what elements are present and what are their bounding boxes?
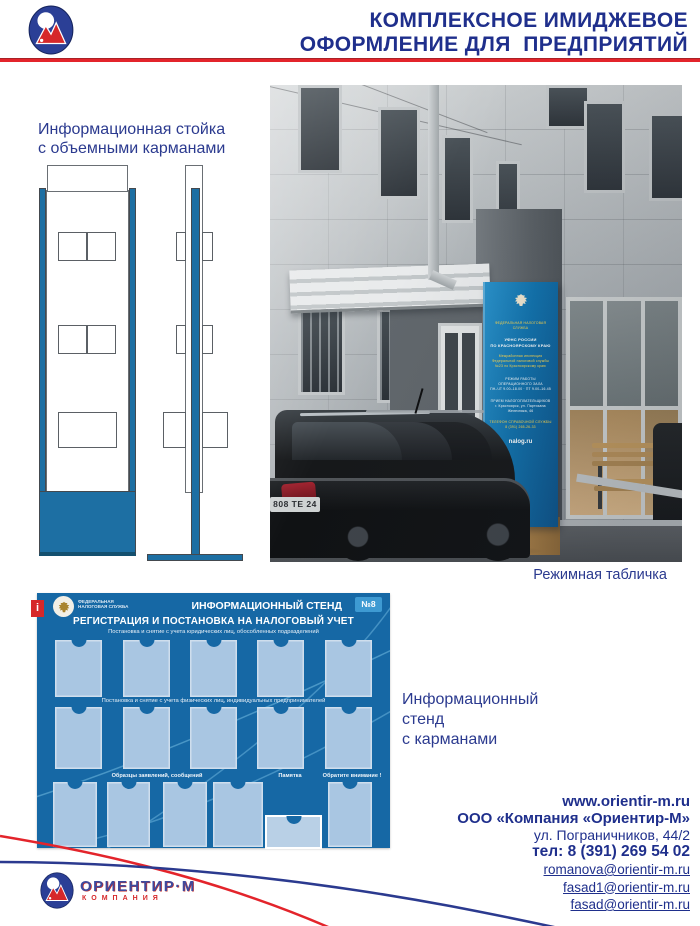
pylon-text: ФЕДЕРАЛЬНАЯ НАЛОГОВАЯ СЛУЖБА <box>489 321 552 331</box>
pylon-text: ПН–ЧТ 9.00–18.00 · ПТ 9.00–16.45 <box>489 387 552 392</box>
pocket <box>213 782 263 847</box>
fns-emblem-circle <box>53 596 74 617</box>
email-link[interactable]: fasad1@orientir-m.ru <box>457 879 690 897</box>
pocket-landscape <box>267 817 320 847</box>
company-name: ООО «Компания «Ориентир-М» <box>457 810 690 827</box>
board-title: РЕГИСТРАЦИЯ И ПОСТАНОВКА НА НАЛОГОВЫЙ УЧ… <box>37 616 390 627</box>
email-link[interactable]: fasad@orientir-m.ru <box>457 896 690 914</box>
pocket <box>325 640 372 697</box>
header-divider <box>0 58 700 62</box>
pocket <box>328 782 372 847</box>
drawing-pocket <box>87 232 116 261</box>
pocket <box>53 782 97 847</box>
pocket <box>55 640 102 697</box>
drawing-pocket <box>176 232 186 261</box>
pocket <box>257 707 304 769</box>
board-attention-label: Обратите внимание ! <box>323 773 382 779</box>
stand-drawing-caption: Информационная стойка с объемными карман… <box>38 120 225 158</box>
board-caption-line2: стенд <box>402 710 538 730</box>
company-address: ул. Пограничников, 44/2 <box>457 827 690 843</box>
window-pane <box>607 301 640 406</box>
window <box>649 113 682 201</box>
drawing-pocket <box>202 325 213 354</box>
window <box>298 85 342 173</box>
stand-caption-line1: Информационная стойка <box>38 120 225 139</box>
drawing-pocket <box>202 232 213 261</box>
board-type-label: ИНФОРМАЦИОННЫЙ СТЕНД <box>191 600 342 612</box>
board-section1-label: Постановка и снятие с учета юридических … <box>37 629 390 635</box>
pylon-text: г. Красноярск, ул. Партизана Железняка, … <box>489 404 552 414</box>
stand-caption-line2: с объемными карманами <box>38 139 225 158</box>
drawing-pocket <box>58 232 87 261</box>
brochure-page: КОМПЛЕКСНОЕ ИМИДЖЕВОЕОФОРМЛЕНИЕ ДЛЯ ПРЕД… <box>0 0 700 926</box>
stand-side-bar <box>129 188 136 493</box>
stand-header-panel <box>47 165 128 192</box>
board-section2-label: Постановка и снятие с учета физических л… <box>37 698 390 704</box>
fns-eagle-icon <box>513 292 529 308</box>
pylon-text: ПО КРАСНОЯРСКОМУ КРАЮ <box>489 343 552 349</box>
stand-pole <box>191 188 200 556</box>
pocket <box>257 640 304 697</box>
info-icon: i <box>31 600 44 617</box>
window-pane <box>645 301 678 406</box>
company-logo-mountain-icon <box>28 5 74 55</box>
company-phone: тел: 8 (391) 269 54 02 <box>457 843 690 861</box>
board-caption-line3: с карманами <box>402 730 538 750</box>
photo-caption: Режимная табличка <box>533 567 667 583</box>
window <box>584 101 625 193</box>
drawing-pocket-wide <box>202 412 228 448</box>
board-memo-label: Памятка <box>278 773 301 779</box>
board-samples-label: Образцы заявлений, сообщений <box>112 773 203 779</box>
downspout-pipe <box>428 85 439 280</box>
window-pane <box>570 301 603 406</box>
drawing-pocket-wide <box>58 412 117 448</box>
entrance-canopy <box>289 264 490 314</box>
building-photo: ФЕДЕРАЛЬНАЯ НАЛОГОВАЯ СЛУЖБА УФНС РОССИИ… <box>270 85 682 562</box>
drawing-pocket <box>58 325 87 354</box>
page-title: КОМПЛЕКСНОЕ ИМИДЖЕВОЕОФОРМЛЕНИЕ ДЛЯ ПРЕД… <box>300 9 688 57</box>
agency-name: ФЕДЕРАЛЬНАЯ НАЛОГОВАЯ СЛУЖБА <box>78 599 128 610</box>
pocket <box>325 707 372 769</box>
pocket <box>190 640 237 697</box>
info-board: i ФЕДЕРАЛЬНАЯ НАЛОГОВАЯ СЛУЖБА ИНФОРМАЦИ… <box>37 593 390 848</box>
agency-line2: НАЛОГОВАЯ СЛУЖБА <box>78 604 128 609</box>
roof-rail <box>366 410 484 413</box>
pylon-text: РЕЖИМ РАБОТЫ ОПЕРАЦИОННОГО ЗАЛА <box>489 377 552 387</box>
license-plate: 808 ТЕ 24 <box>270 497 320 512</box>
window <box>442 135 473 223</box>
pocket <box>123 707 170 769</box>
pocket <box>163 782 207 847</box>
footer-logo-subtitle: КОМПАНИЯ <box>82 895 163 902</box>
car-wheel <box>336 517 380 561</box>
drawing-pocket <box>176 325 186 354</box>
board-number-badge: №8 <box>355 597 382 612</box>
car-windows <box>292 422 492 460</box>
email-link[interactable]: romanova@orientir-m.ru <box>457 861 690 879</box>
pylon-text: Межрайонная инспекция Федеральной налого… <box>489 354 552 369</box>
website-link[interactable]: www.orientir-m.ru <box>457 793 690 810</box>
fns-eagle-icon <box>57 600 71 614</box>
window <box>378 107 420 199</box>
drawing-pocket <box>87 325 116 354</box>
stand-side-bar <box>39 188 46 493</box>
pocket <box>123 640 170 697</box>
pylon-text: ТЕЛЕФОН СПРАВОЧНОЙ СЛУЖБЫ 8 (391) 265-26… <box>489 420 552 430</box>
drawing-pocket-wide <box>163 412 186 448</box>
footer-logo-mountain-icon <box>40 872 74 909</box>
board-caption: Информационный стенд с карманами <box>402 690 538 750</box>
page-title-line2: ОФОРМЛЕНИЕ ДЛЯ ПРЕДПРИЯТИЙ <box>300 33 688 56</box>
stand-foot <box>147 554 243 561</box>
pocket <box>107 782 150 847</box>
board-caption-line1: Информационный <box>402 690 538 710</box>
footer-logo-name: ОРИЕНТИР·М <box>80 878 196 895</box>
pocket <box>55 707 102 769</box>
stand-base <box>39 491 136 556</box>
car-wheel <box>474 513 522 561</box>
pocket <box>190 707 237 769</box>
contact-block: www.orientir-m.ru ООО «Компания «Ориенти… <box>457 793 690 914</box>
page-title-line1: КОМПЛЕКСНОЕ ИМИДЖЕВОЕ <box>369 9 688 32</box>
